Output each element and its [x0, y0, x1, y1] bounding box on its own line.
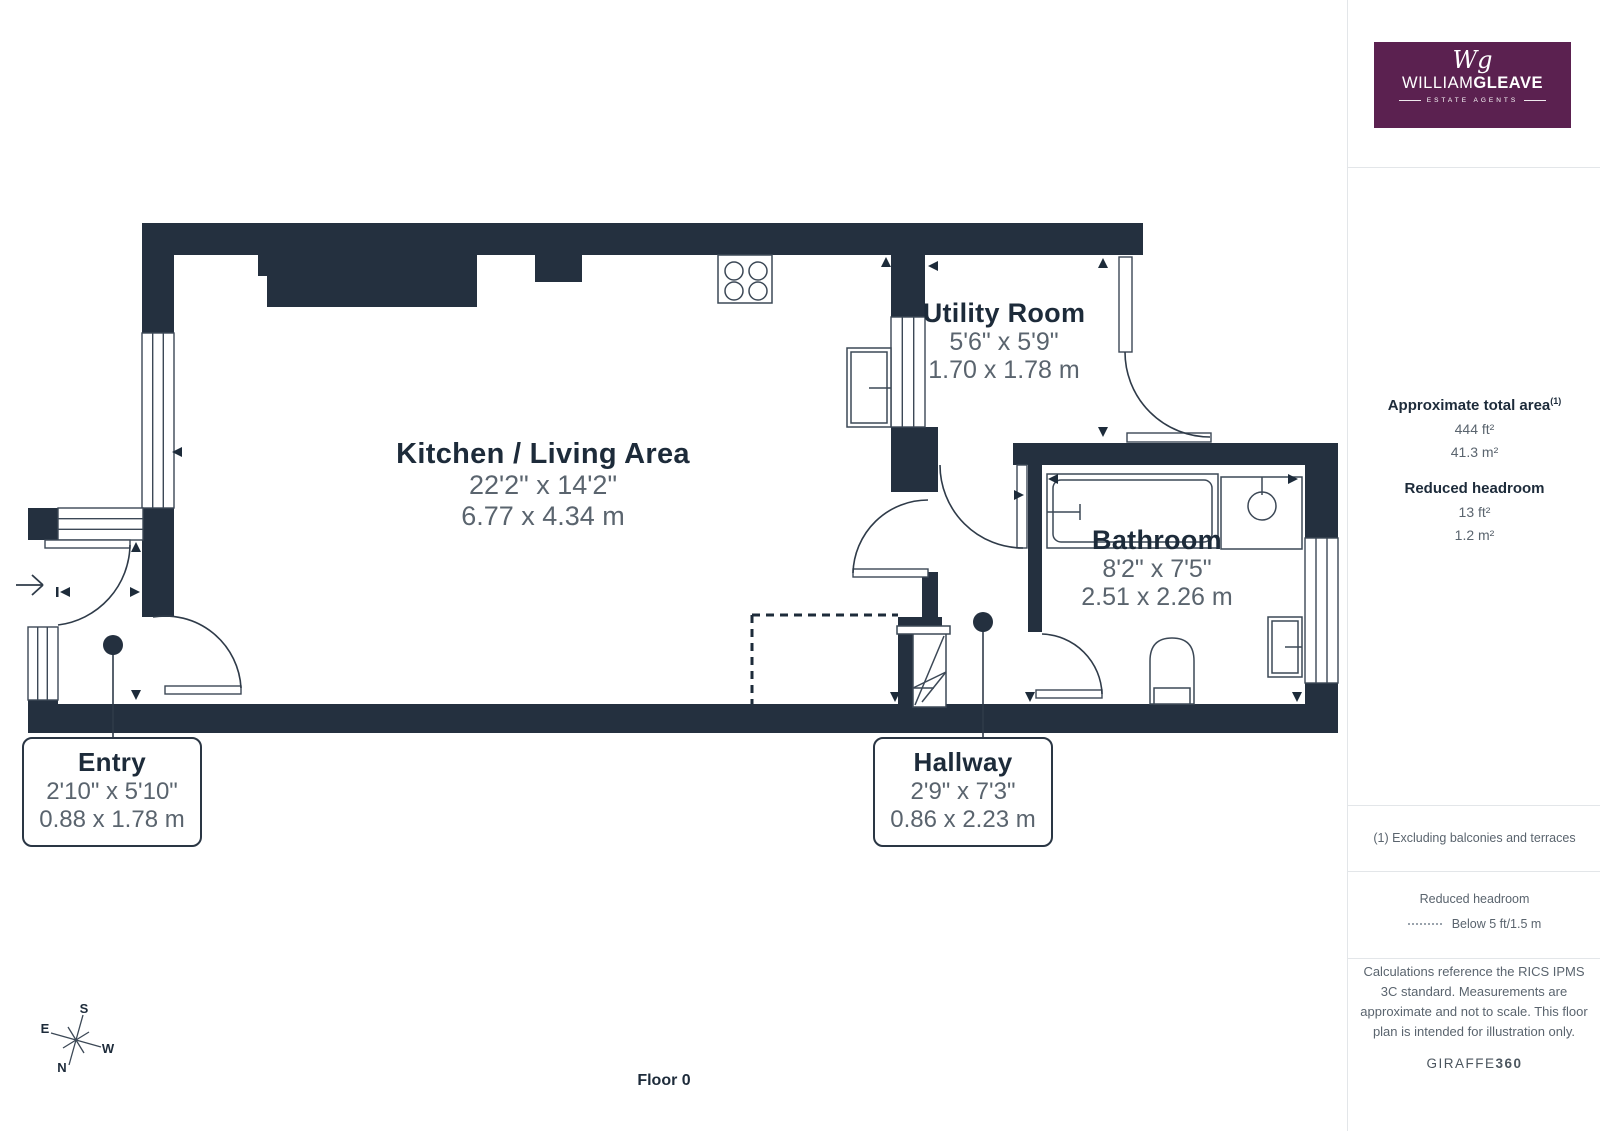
reduced-headroom-block: Reduced headroom 13 ft² 1.2 m² — [1348, 480, 1600, 543]
divider — [1348, 167, 1600, 168]
brand-suffix: 360 — [1495, 1056, 1522, 1071]
callout-dim-imperial: 2'9" x 7'3" — [875, 778, 1051, 806]
logo-name-bold: GLEAVE — [1473, 74, 1543, 92]
total-area-ft: 444 ft² — [1348, 421, 1600, 437]
entrance-arrow-icon — [16, 575, 43, 595]
room-label-kitchen-living: Kitchen / Living Area 22'2" x 14'2" 6.77… — [373, 438, 713, 531]
info-sidebar: Wg WILLIAMGLEAVE ESTATE AGENTS Approxima… — [1347, 0, 1600, 1131]
total-area-block: Approximate total area(1) 444 ft² 41.3 m… — [1348, 396, 1600, 460]
callout-title: Hallway — [875, 747, 1051, 778]
bathroom-door-leaf — [1036, 690, 1102, 698]
room-dim-imperial: 5'6" x 5'9" — [864, 328, 1144, 356]
front-door-arc — [58, 545, 130, 625]
callout-title: Entry — [24, 747, 200, 778]
legend-block: Reduced headroom Below 5 ft/1.5 m — [1348, 892, 1600, 931]
room-name: Kitchen / Living Area — [373, 438, 713, 470]
brand-name: GIRAFFE — [1426, 1056, 1495, 1071]
callout-dim-imperial: 2'10" x 5'10" — [24, 778, 200, 806]
room-dim-metric: 1.70 x 1.78 m — [864, 356, 1144, 384]
utility-back-door-threshold — [1127, 433, 1211, 442]
window-entry-top-icon — [58, 508, 143, 540]
entry-kitchen-door-leaf — [165, 686, 241, 694]
reduced-headroom-title: Reduced headroom — [1348, 480, 1600, 497]
divider — [1348, 805, 1600, 806]
hallway-utility-door-arc — [940, 465, 1023, 548]
disclaimer-text: Calculations reference the RICS IPMS 3C … — [1357, 962, 1591, 1042]
callout-dim-metric: 0.86 x 2.23 m — [875, 806, 1051, 834]
room-label-bathroom: Bathroom 8'2" x 7'5" 2.51 x 2.26 m — [1017, 525, 1297, 611]
entry-kitchen-door-arc — [153, 616, 241, 688]
room-dim-imperial: 22'2" x 14'2" — [373, 470, 713, 500]
logo-name: WILLIAMGLEAVE — [1402, 75, 1543, 92]
entry-anchor-dot — [103, 635, 123, 655]
logo-tagline-row: ESTATE AGENTS — [1399, 97, 1547, 104]
tagline-rule — [1399, 100, 1421, 101]
tagline-rule — [1524, 100, 1546, 101]
divider — [1348, 871, 1600, 872]
front-door-leaf — [45, 540, 130, 548]
bathroom-door-arc — [1042, 634, 1102, 694]
stove-icon — [718, 255, 772, 303]
reduced-headroom-dashed-line — [752, 615, 898, 704]
total-area-m: 41.3 m² — [1348, 444, 1600, 460]
logo-monogram: Wg — [1452, 48, 1492, 72]
compass-south-label: S — [80, 1001, 89, 1016]
room-dim-metric: 6.77 x 4.34 m — [373, 501, 713, 531]
compass-east-label: E — [41, 1021, 50, 1036]
dashed-line-sample — [1408, 923, 1442, 925]
compass-north-label: N — [57, 1060, 66, 1075]
reduced-headroom-ft: 13 ft² — [1348, 504, 1600, 520]
floorplan-page: S E W N Kitchen / Living Area 22'2" x 14… — [0, 0, 1600, 1131]
total-area-title: Approximate total area(1) — [1348, 396, 1600, 414]
logo-tagline: ESTATE AGENTS — [1427, 97, 1519, 104]
room-dim-metric: 2.51 x 2.26 m — [1017, 583, 1297, 611]
divider — [1348, 958, 1600, 959]
compass-west-label: W — [102, 1041, 115, 1056]
reduced-headroom-m: 1.2 m² — [1348, 527, 1600, 543]
logo-name-light: WILLIAM — [1402, 74, 1473, 92]
floor-label: Floor 0 — [564, 1072, 764, 1090]
window-entry-left-icon — [28, 627, 58, 700]
area-footnote: (1) Excluding balconies and terraces — [1348, 831, 1600, 845]
hallway-anchor-dot — [973, 612, 993, 632]
kitchen-hallway-door-arc — [853, 500, 928, 573]
toilet-icon — [1150, 638, 1194, 704]
legend-row: Below 5 ft/1.5 m — [1348, 917, 1600, 931]
callout-entry: Entry 2'10" x 5'10" 0.88 x 1.78 m — [22, 737, 202, 847]
room-dim-imperial: 8'2" x 7'5" — [1017, 555, 1297, 583]
legend-value: Below 5 ft/1.5 m — [1452, 917, 1542, 931]
window-bathroom-right-icon — [1305, 538, 1338, 683]
legend-title: Reduced headroom — [1348, 892, 1600, 906]
giraffe360-brand: GIRAFFE360 — [1348, 1056, 1600, 1071]
compass-icon: S E W N — [41, 1001, 115, 1075]
agency-logo: Wg WILLIAMGLEAVE ESTATE AGENTS — [1374, 42, 1571, 128]
window-kitchen-left-icon — [142, 333, 174, 508]
callout-hallway: Hallway 2'9" x 7'3" 0.86 x 2.23 m — [873, 737, 1053, 847]
kitchen-hallway-door-leaf — [853, 569, 928, 577]
footnote-ref: (1) — [1550, 396, 1561, 406]
callout-dim-metric: 0.88 x 1.78 m — [24, 806, 200, 834]
radiator-icon — [1268, 617, 1302, 677]
room-name: Bathroom — [1017, 525, 1297, 555]
room-label-utility: Utility Room 5'6" x 5'9" 1.70 x 1.78 m — [864, 298, 1144, 384]
room-name: Utility Room — [864, 298, 1144, 328]
